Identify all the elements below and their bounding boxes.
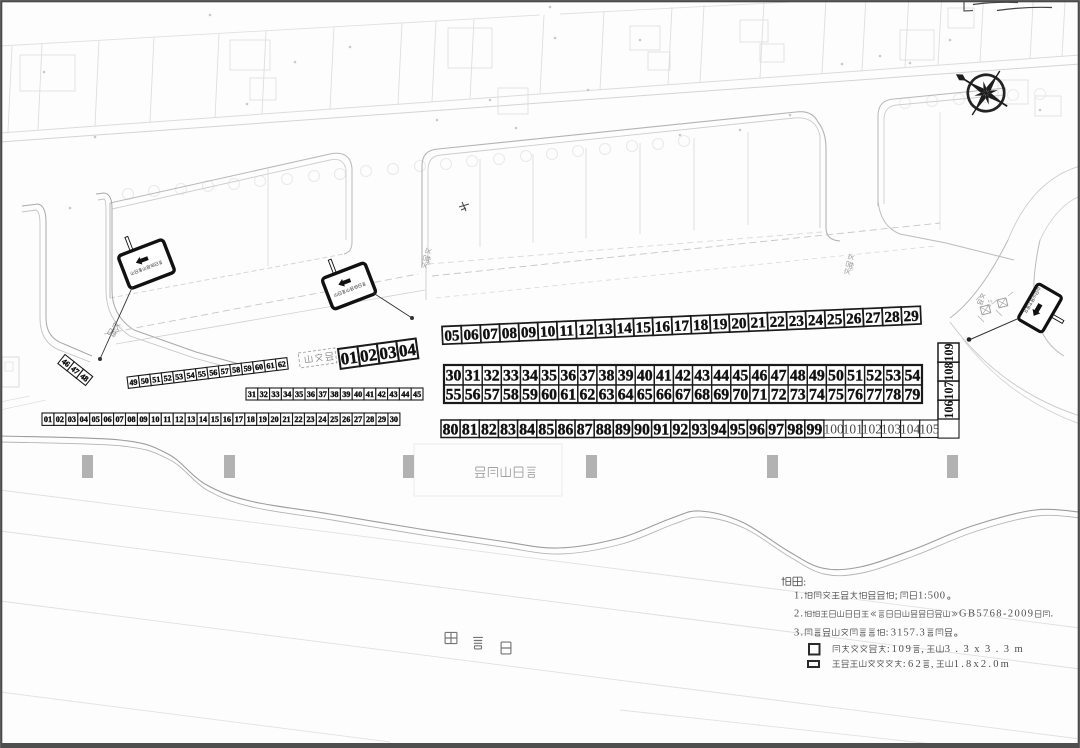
svg-text:65: 65 bbox=[637, 387, 653, 404]
svg-text:13: 13 bbox=[187, 415, 195, 424]
svg-text:87: 87 bbox=[577, 421, 593, 438]
svg-text:05: 05 bbox=[92, 415, 100, 424]
svg-text:72: 72 bbox=[771, 387, 787, 404]
svg-text:10: 10 bbox=[540, 323, 556, 341]
svg-text:101: 101 bbox=[843, 422, 863, 437]
svg-text:44: 44 bbox=[713, 368, 729, 385]
svg-text:29: 29 bbox=[903, 308, 919, 326]
svg-text:46: 46 bbox=[752, 368, 768, 385]
svg-text:03: 03 bbox=[68, 415, 76, 424]
svg-text:58: 58 bbox=[503, 387, 519, 404]
svg-text:100: 100 bbox=[823, 422, 844, 437]
svg-text:25: 25 bbox=[827, 311, 843, 329]
svg-text:11: 11 bbox=[559, 322, 574, 340]
svg-text:109: 109 bbox=[942, 343, 956, 361]
svg-text:40: 40 bbox=[637, 368, 653, 385]
svg-text:104: 104 bbox=[900, 422, 921, 437]
svg-text:50: 50 bbox=[828, 368, 844, 385]
svg-text:103: 103 bbox=[881, 422, 902, 437]
svg-text:09: 09 bbox=[139, 415, 147, 424]
svg-text:108: 108 bbox=[942, 362, 956, 380]
svg-text:28: 28 bbox=[366, 415, 374, 424]
svg-text:GB5768-2009: GB5768-2009 bbox=[959, 609, 1033, 620]
svg-text:45: 45 bbox=[413, 390, 421, 399]
svg-text:10: 10 bbox=[151, 415, 159, 424]
svg-text:,: , bbox=[931, 659, 934, 670]
svg-text:37: 37 bbox=[319, 390, 327, 399]
svg-text:3.: 3. bbox=[794, 628, 803, 639]
svg-text:38: 38 bbox=[599, 368, 615, 385]
svg-text:97: 97 bbox=[768, 421, 784, 438]
svg-text:56: 56 bbox=[209, 368, 218, 378]
svg-text:53: 53 bbox=[885, 368, 901, 385]
svg-text:31: 31 bbox=[465, 368, 481, 385]
svg-text:;: ; bbox=[895, 591, 898, 602]
svg-text:92: 92 bbox=[672, 421, 688, 438]
svg-text:47: 47 bbox=[771, 368, 787, 385]
svg-text:73: 73 bbox=[790, 387, 806, 404]
svg-text:94: 94 bbox=[711, 421, 727, 438]
svg-text:77: 77 bbox=[866, 387, 882, 404]
svg-text:12: 12 bbox=[175, 415, 183, 424]
svg-text:74: 74 bbox=[809, 387, 825, 404]
svg-text::: : bbox=[803, 577, 806, 588]
svg-text:78: 78 bbox=[885, 387, 901, 404]
svg-text:39: 39 bbox=[618, 368, 634, 385]
svg-text:2.: 2. bbox=[794, 609, 803, 620]
svg-text:08: 08 bbox=[501, 325, 517, 343]
svg-text:17: 17 bbox=[235, 415, 243, 424]
svg-text:23: 23 bbox=[788, 313, 804, 331]
svg-text:18: 18 bbox=[693, 317, 709, 335]
svg-text:51: 51 bbox=[152, 375, 161, 385]
svg-text:11: 11 bbox=[163, 415, 171, 424]
svg-text:14: 14 bbox=[199, 415, 207, 424]
svg-text:01: 01 bbox=[44, 415, 52, 424]
svg-text:45: 45 bbox=[732, 368, 748, 385]
svg-text:66: 66 bbox=[656, 387, 672, 404]
svg-text:63: 63 bbox=[599, 387, 615, 404]
svg-text:16: 16 bbox=[223, 415, 231, 424]
svg-text:36: 36 bbox=[307, 390, 315, 399]
svg-text:15: 15 bbox=[211, 415, 219, 424]
svg-text:54: 54 bbox=[186, 371, 195, 381]
svg-text:.: . bbox=[1051, 609, 1054, 620]
svg-text:33: 33 bbox=[271, 390, 279, 399]
svg-text:55: 55 bbox=[197, 369, 206, 379]
svg-text:106: 106 bbox=[942, 400, 956, 418]
svg-text:76: 76 bbox=[847, 387, 863, 404]
svg-text:81: 81 bbox=[462, 421, 478, 438]
svg-text:1.8x2.0m: 1.8x2.0m bbox=[954, 659, 1009, 670]
svg-text:71: 71 bbox=[752, 387, 768, 404]
svg-text:04: 04 bbox=[398, 340, 418, 361]
svg-text:42: 42 bbox=[675, 368, 691, 385]
svg-text:31: 31 bbox=[248, 390, 256, 399]
svg-text:20: 20 bbox=[271, 415, 279, 424]
svg-text:02: 02 bbox=[359, 345, 378, 366]
svg-text:07: 07 bbox=[482, 325, 498, 343]
svg-text:91: 91 bbox=[653, 421, 669, 438]
svg-text:18: 18 bbox=[247, 415, 255, 424]
svg-text:20: 20 bbox=[731, 315, 747, 333]
svg-text:102: 102 bbox=[862, 422, 882, 437]
svg-text:49: 49 bbox=[129, 377, 138, 387]
svg-text:62: 62 bbox=[580, 387, 596, 404]
svg-text:70: 70 bbox=[732, 387, 748, 404]
svg-text:1.: 1. bbox=[794, 591, 803, 602]
svg-text:05: 05 bbox=[444, 327, 460, 345]
svg-text:67: 67 bbox=[675, 387, 691, 404]
svg-text:88: 88 bbox=[596, 421, 612, 438]
svg-text:,: , bbox=[921, 644, 924, 655]
svg-text:35: 35 bbox=[541, 368, 557, 385]
svg-text:95: 95 bbox=[730, 421, 746, 438]
svg-text:82: 82 bbox=[481, 421, 497, 438]
svg-text:55: 55 bbox=[446, 387, 462, 404]
svg-text:93: 93 bbox=[692, 421, 708, 438]
svg-text:83: 83 bbox=[500, 421, 516, 438]
svg-text:61: 61 bbox=[266, 361, 275, 371]
svg-text:22: 22 bbox=[294, 415, 302, 424]
svg-text:27: 27 bbox=[865, 309, 881, 327]
svg-text:80: 80 bbox=[443, 421, 459, 438]
svg-text:1:500: 1:500 bbox=[918, 591, 945, 602]
svg-text:02: 02 bbox=[56, 415, 64, 424]
svg-text:21: 21 bbox=[282, 415, 290, 424]
svg-text:12: 12 bbox=[578, 321, 594, 339]
svg-text:29: 29 bbox=[378, 415, 386, 424]
svg-text:44: 44 bbox=[401, 390, 409, 399]
svg-text:53: 53 bbox=[175, 372, 184, 382]
svg-text:36: 36 bbox=[560, 368, 576, 385]
svg-text:32: 32 bbox=[260, 390, 268, 399]
svg-text:58: 58 bbox=[232, 365, 241, 375]
svg-text:24: 24 bbox=[808, 312, 824, 330]
svg-text:03: 03 bbox=[378, 342, 397, 363]
svg-text:43: 43 bbox=[389, 390, 397, 399]
svg-text:28: 28 bbox=[884, 308, 900, 326]
svg-text:57: 57 bbox=[484, 387, 500, 404]
svg-text:52: 52 bbox=[163, 373, 172, 383]
svg-text:89: 89 bbox=[615, 421, 631, 438]
svg-text::: : bbox=[886, 628, 889, 639]
svg-text:34: 34 bbox=[283, 390, 291, 399]
svg-text:43: 43 bbox=[694, 368, 710, 385]
svg-text:06: 06 bbox=[463, 326, 479, 344]
svg-text:04: 04 bbox=[80, 415, 88, 424]
svg-text:23: 23 bbox=[306, 415, 314, 424]
svg-text:37: 37 bbox=[580, 368, 596, 385]
svg-text:64: 64 bbox=[618, 387, 634, 404]
svg-text:08: 08 bbox=[127, 415, 135, 424]
svg-text:15: 15 bbox=[635, 319, 651, 337]
svg-text:33: 33 bbox=[503, 368, 519, 385]
svg-text:79: 79 bbox=[905, 387, 921, 404]
svg-text:54: 54 bbox=[905, 368, 921, 385]
svg-text:14: 14 bbox=[616, 320, 632, 338]
svg-text:90: 90 bbox=[634, 421, 650, 438]
svg-text::62: :62 bbox=[903, 659, 921, 670]
svg-text:60: 60 bbox=[255, 362, 264, 372]
svg-text:19: 19 bbox=[712, 316, 728, 334]
svg-text:99: 99 bbox=[807, 421, 823, 438]
svg-text:49: 49 bbox=[809, 368, 825, 385]
svg-text:21: 21 bbox=[750, 314, 766, 332]
svg-text:35: 35 bbox=[295, 390, 303, 399]
svg-text:30: 30 bbox=[446, 368, 462, 385]
svg-text:50: 50 bbox=[140, 376, 149, 386]
svg-text:60: 60 bbox=[541, 387, 557, 404]
svg-text:32: 32 bbox=[484, 368, 500, 385]
svg-text:42: 42 bbox=[378, 390, 386, 399]
svg-text:34: 34 bbox=[522, 368, 538, 385]
svg-text:40: 40 bbox=[354, 390, 362, 399]
svg-text:96: 96 bbox=[749, 421, 765, 438]
svg-text:48: 48 bbox=[790, 368, 806, 385]
svg-text:07: 07 bbox=[115, 415, 123, 424]
svg-text:19: 19 bbox=[259, 415, 267, 424]
svg-text:57: 57 bbox=[220, 366, 229, 376]
svg-text:68: 68 bbox=[694, 387, 710, 404]
svg-text:17: 17 bbox=[674, 317, 690, 335]
svg-text:61: 61 bbox=[560, 387, 576, 404]
svg-text:56: 56 bbox=[465, 387, 481, 404]
svg-text:25: 25 bbox=[330, 415, 338, 424]
svg-text:51: 51 bbox=[847, 368, 863, 385]
svg-text:01: 01 bbox=[339, 348, 358, 369]
svg-text:59: 59 bbox=[522, 387, 538, 404]
svg-text:62: 62 bbox=[277, 359, 286, 369]
svg-text:85: 85 bbox=[538, 421, 554, 438]
svg-text:98: 98 bbox=[787, 421, 803, 438]
svg-text:41: 41 bbox=[656, 368, 672, 385]
svg-text:41: 41 bbox=[366, 390, 374, 399]
svg-text:39: 39 bbox=[342, 390, 350, 399]
svg-text:69: 69 bbox=[713, 387, 729, 404]
svg-text:26: 26 bbox=[342, 415, 350, 424]
svg-text:84: 84 bbox=[519, 421, 535, 438]
svg-text:59: 59 bbox=[243, 364, 252, 374]
svg-text:13: 13 bbox=[597, 321, 613, 339]
svg-text:107: 107 bbox=[942, 381, 956, 399]
svg-text:09: 09 bbox=[521, 324, 537, 342]
svg-text:30: 30 bbox=[390, 415, 398, 424]
svg-text:27: 27 bbox=[354, 415, 362, 424]
svg-text:22: 22 bbox=[769, 313, 785, 331]
svg-text:24: 24 bbox=[318, 415, 326, 424]
svg-text:105: 105 bbox=[919, 422, 940, 437]
svg-text:3157.3: 3157.3 bbox=[891, 628, 925, 639]
svg-text:75: 75 bbox=[828, 387, 844, 404]
svg-text:26: 26 bbox=[846, 310, 862, 328]
svg-text:86: 86 bbox=[558, 421, 574, 438]
svg-text:06: 06 bbox=[104, 415, 112, 424]
svg-text:38: 38 bbox=[330, 390, 338, 399]
svg-text:16: 16 bbox=[654, 318, 670, 336]
svg-text:52: 52 bbox=[866, 368, 882, 385]
